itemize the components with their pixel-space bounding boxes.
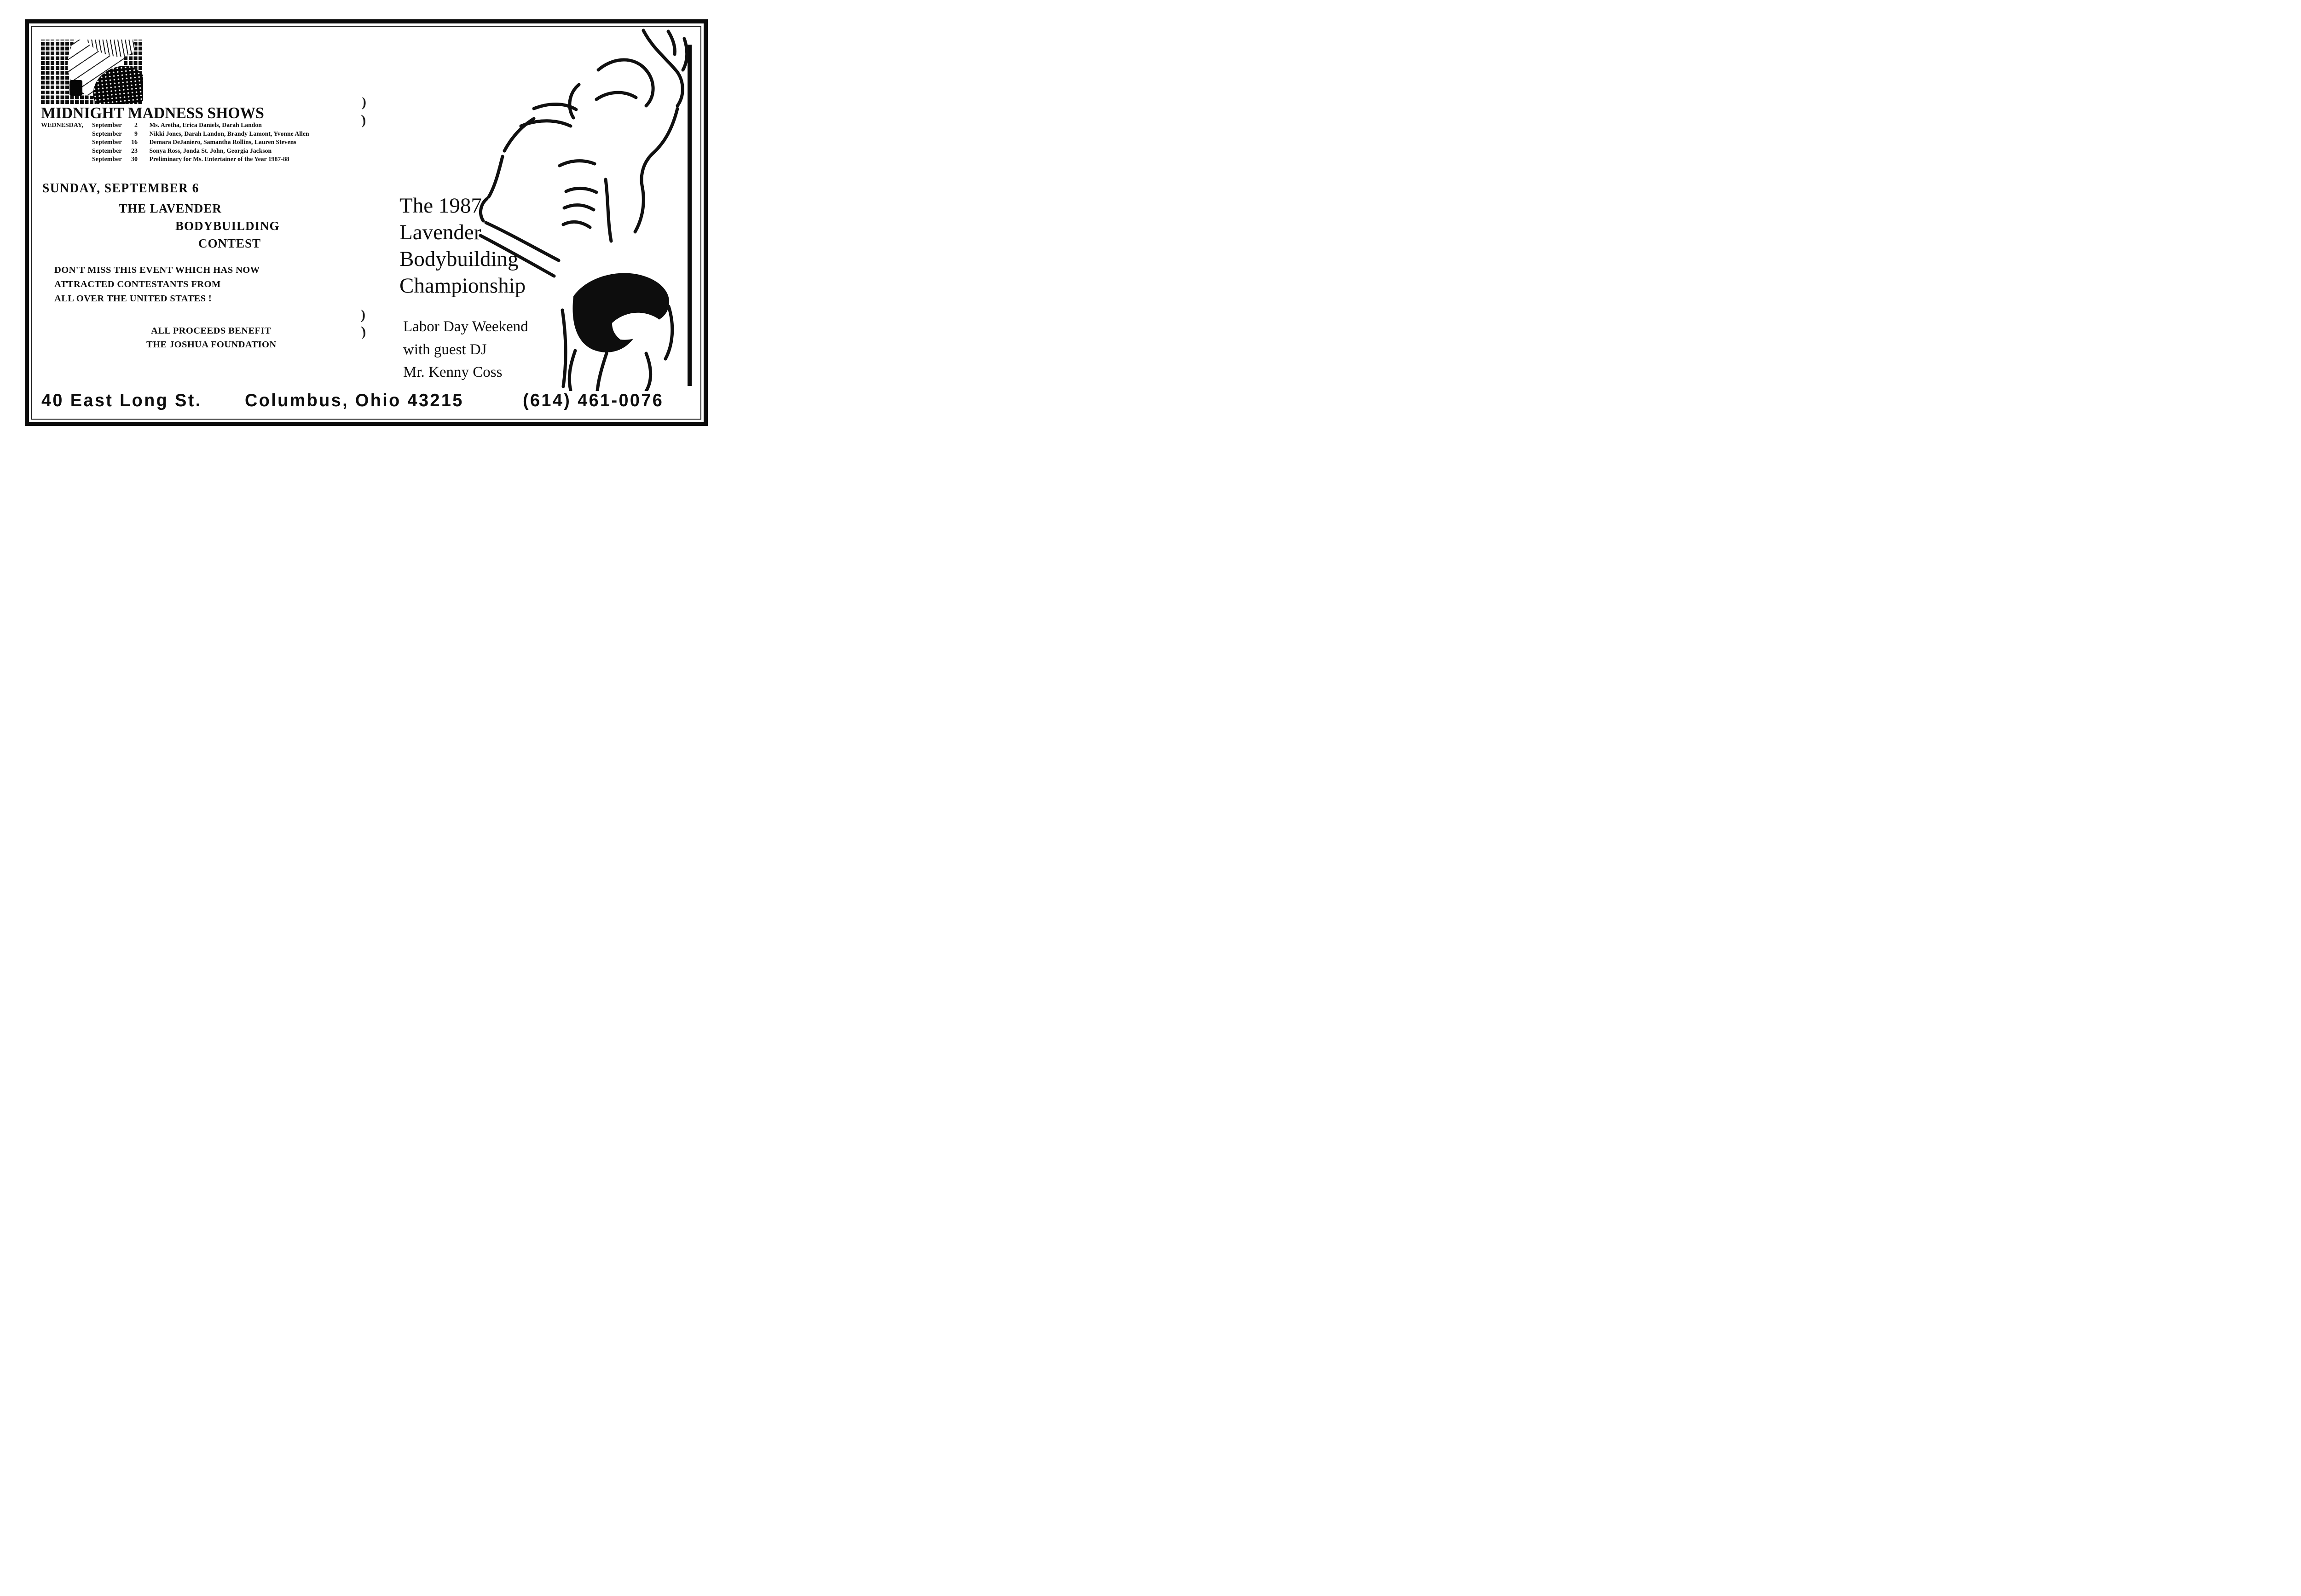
schedule-date: 2 (125, 121, 138, 130)
upper-arm-outer (489, 156, 503, 197)
schedule-day: WEDNESDAY, (41, 121, 92, 130)
schedule-month: September (92, 121, 125, 130)
schedule-month: September (92, 130, 125, 139)
street-address: 40 East Long St. (41, 391, 202, 411)
scan-artifact-mark: ) (361, 95, 367, 110)
schedule-day (41, 130, 92, 139)
deltoid-line (570, 85, 579, 118)
footer-address-strip: 40 East Long St. Columbus, Ohio 43215 (6… (0, 391, 723, 412)
front-leg-line (562, 310, 566, 386)
forearm-bottom (480, 236, 554, 276)
schedule-month: September (92, 156, 125, 164)
hand-outline (683, 39, 687, 70)
thigh-line-left (569, 351, 575, 390)
halftone-dark-patch (69, 80, 82, 96)
show-schedule-list: WEDNESDAY, September 2 Ms. Aretha, Erica… (41, 121, 312, 164)
rib-line1 (566, 188, 596, 192)
rib-line3 (563, 222, 590, 227)
scanned-flyer-page: MIDNIGHT MADNESS SHOWS WEDNESDAY, Septem… (0, 0, 723, 444)
benefit-line1: ALL PROCEEDS BENEFIT (151, 326, 271, 336)
contest-name-line1: THE LAVENDER (119, 202, 222, 216)
midnight-madness-title: MIDNIGHT MADNESS SHOWS (41, 104, 264, 122)
contest-date-line: SUNDAY, SEPTEMBER 6 (42, 181, 199, 196)
lat-waist-edge (635, 188, 643, 232)
phone-number: (614) 461-0076 (523, 391, 664, 411)
schedule-day (41, 147, 92, 156)
schedule-date: 16 (125, 138, 138, 147)
contest-pitch-line3: ALL OVER THE UNITED STATES ! (54, 294, 212, 304)
thigh-line-middle (597, 353, 607, 391)
schedule-lineup: Ms. Aretha, Erica Daniels, Darah Landon (138, 121, 309, 130)
contest-pitch-line1: DON'T MISS THIS EVENT WHICH HAS NOW (54, 265, 260, 276)
schedule-date: 23 (125, 147, 138, 156)
schedule-day (41, 156, 92, 164)
bodybuilder-line-art (460, 28, 706, 391)
schedule-lineup: Preliminary for Ms. Entertainer of the Y… (138, 156, 309, 164)
biceps-outline (598, 60, 653, 106)
thigh-line-right (646, 353, 651, 391)
schedule-lineup: Demara DeJaniero, Samantha Rollins, Laur… (138, 138, 309, 147)
wrist-line (668, 31, 675, 54)
abdomen-line (606, 179, 611, 241)
forearm-top (486, 223, 559, 260)
rib-line2 (564, 205, 594, 210)
elbow-curve (480, 199, 487, 221)
pec-line (560, 161, 595, 166)
schedule-day (41, 138, 92, 147)
schedule-lineup: Nikki Jones, Darah Landon, Brandy Lamont… (138, 130, 309, 139)
hip-line (665, 306, 672, 359)
schedule-lineup: Sonya Ross, Jonda St. John, Georgia Jack… (138, 147, 309, 156)
benefit-line2: THE JOSHUA FOUNDATION (146, 340, 277, 350)
schedule-month: September (92, 138, 125, 147)
contest-pitch-line2: ATTRACTED CONTESTANTS FROM (54, 279, 221, 290)
upper-back-edge (642, 109, 677, 188)
schedule-month: September (92, 147, 125, 156)
contest-name-line3: CONTEST (198, 236, 261, 251)
scan-artifact-mark: ) (360, 307, 365, 323)
shoulder-to-arm-line (504, 119, 534, 151)
halftone-photo (41, 40, 143, 104)
posing-trunks (572, 273, 669, 352)
schedule-date: 9 (125, 130, 138, 139)
contest-name-line2: BODYBUILDING (175, 219, 280, 233)
raised-arm-outline (643, 30, 682, 106)
schedule-date: 30 (125, 156, 138, 164)
biceps-inner-line (596, 92, 636, 99)
city-zip: Columbus, Ohio 43215 (245, 391, 464, 411)
